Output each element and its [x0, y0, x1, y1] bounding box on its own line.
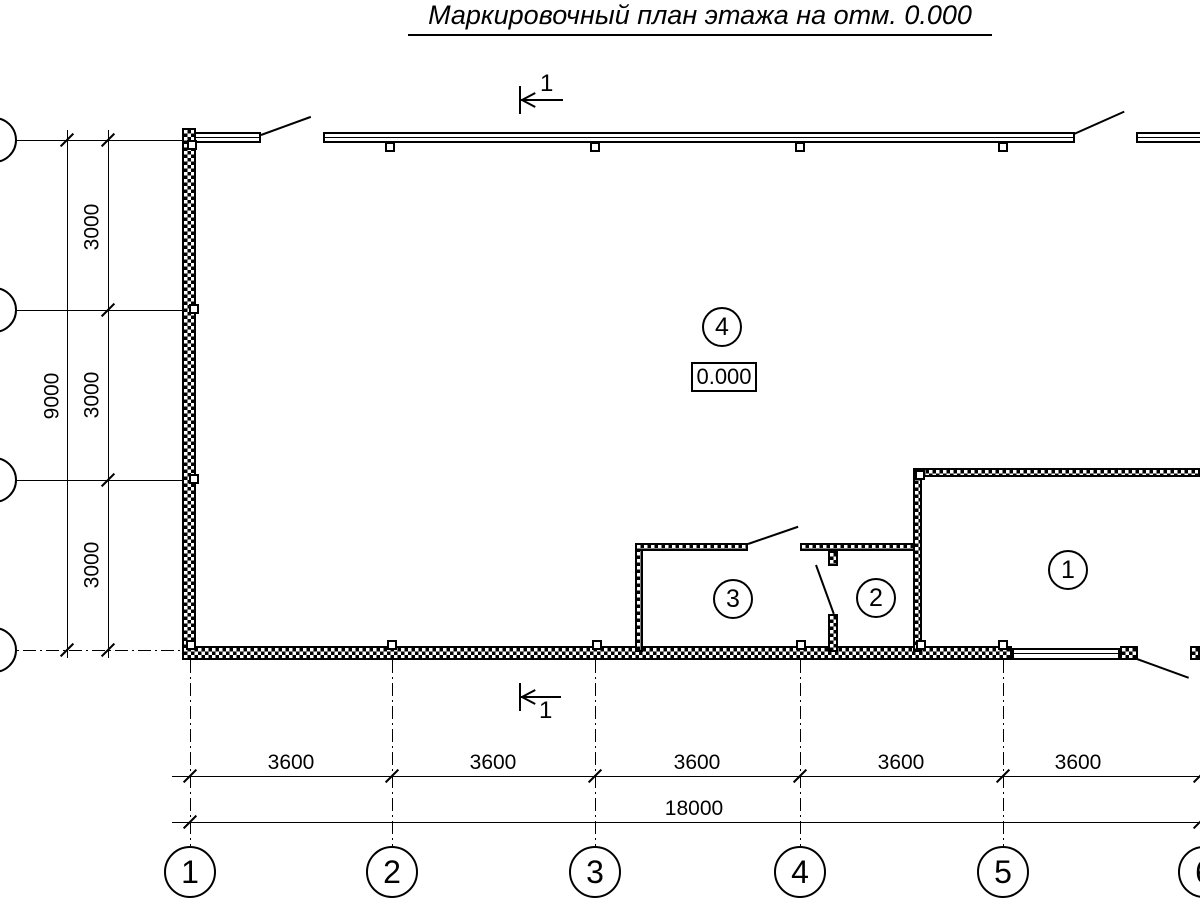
column-post [916, 640, 926, 650]
column-post [387, 640, 397, 650]
column-post [915, 470, 925, 480]
room-circle-2: 2 [856, 578, 896, 618]
axis-circle-left-row4 [0, 627, 17, 673]
dim-label-bay: 3600 [458, 752, 528, 773]
wall-bottom-pier [1120, 646, 1138, 660]
axis-line-5 [1003, 660, 1004, 846]
dimension-line-vertical-total [67, 130, 68, 658]
column-post [592, 640, 602, 650]
dim-label-bay-vertical: 3000 [82, 542, 103, 589]
wall-room3-top [635, 543, 748, 551]
axis-line-row-top [16, 140, 182, 141]
window-band-top-1 [196, 132, 261, 143]
leader-line-top-right [1074, 111, 1125, 135]
room-number: 1 [1061, 556, 1075, 585]
column-post [186, 640, 196, 650]
axis-circle-6: 6 [1178, 846, 1200, 898]
axis-circle-4: 4 [774, 846, 826, 898]
elevation-box: 0.000 [691, 362, 757, 392]
room-circle-4: 4 [702, 307, 742, 347]
wall-partition-stub [828, 551, 838, 566]
axis-label: 6 [1195, 854, 1200, 891]
axis-line-2 [392, 660, 393, 846]
dim-label-bay: 3600 [1043, 752, 1113, 773]
axis-label: 2 [383, 854, 401, 891]
room-number: 3 [726, 585, 740, 614]
column-post [189, 474, 199, 484]
axis-circle-1: 1 [164, 846, 216, 898]
section-mark-bottom-label: 1 [539, 699, 552, 723]
wall-room1-left [913, 468, 922, 652]
dimension-line-vertical-bays [108, 130, 109, 658]
window-band-top-3 [1136, 132, 1200, 143]
dim-label-total-vertical: 9000 [42, 373, 63, 420]
dim-label-bay: 3600 [662, 752, 732, 773]
axis-circle-2: 2 [366, 846, 418, 898]
wall-room2-top [800, 543, 915, 551]
column-post [998, 640, 1008, 650]
section-mark-top-label: 1 [540, 72, 553, 96]
axis-circle-left-row3 [0, 457, 17, 503]
wall-partition-pier [828, 614, 838, 652]
column-post [187, 140, 197, 150]
dimension-line-horizontal-total [172, 822, 1200, 823]
elevation-value: 0.000 [696, 364, 751, 390]
axis-label: 1 [181, 854, 199, 891]
drawing-title: Маркировочный план этажа на отм. 0.000 [408, 0, 992, 36]
column-post [189, 304, 199, 314]
axis-label: 5 [994, 854, 1012, 891]
column-post [590, 142, 600, 152]
axis-circle-3: 3 [569, 846, 621, 898]
axis-line-row-bottom [0, 650, 182, 651]
axis-label: 4 [791, 854, 809, 891]
room-number: 2 [869, 584, 883, 613]
wall-room1-top [913, 468, 1200, 477]
wall-bottom-corner [1190, 646, 1200, 660]
axis-line-4 [800, 660, 801, 846]
leader-line-door-right [1137, 658, 1189, 679]
column-post [998, 142, 1008, 152]
room-number: 4 [715, 313, 729, 342]
room-circle-1: 1 [1048, 550, 1088, 590]
dimension-line-horizontal-bays [172, 776, 1200, 777]
axis-line-3 [595, 660, 596, 846]
dim-label-bay-vertical: 3000 [82, 204, 103, 251]
dim-label-bay-vertical: 3000 [82, 372, 103, 419]
wall-exterior-left [182, 128, 196, 660]
leader-line-top-left [261, 116, 311, 136]
axis-circle-left-row2 [0, 287, 17, 333]
column-post [795, 142, 805, 152]
floor-plan-drawing: Маркировочный план этажа на отм. 0.000 [0, 0, 1200, 900]
door-leaf-room3 [748, 526, 799, 545]
wall-room3-left [635, 543, 643, 652]
axis-circle-5: 5 [977, 846, 1029, 898]
room-circle-3: 3 [713, 579, 753, 619]
dim-label-total-horizontal: 18000 [652, 798, 736, 819]
door-leaf-room2 [815, 565, 835, 615]
window-bottom-wall [1012, 648, 1120, 660]
window-band-top-2 [323, 132, 1075, 143]
axis-label: 3 [586, 854, 604, 891]
axis-line-row-mid1 [16, 310, 182, 311]
column-post [796, 640, 806, 650]
dim-label-bay: 3600 [866, 752, 936, 773]
axis-circle-left-row1 [0, 117, 17, 163]
column-post [385, 142, 395, 152]
axis-line-row-mid2 [16, 480, 182, 481]
dim-label-bay: 3600 [256, 752, 326, 773]
